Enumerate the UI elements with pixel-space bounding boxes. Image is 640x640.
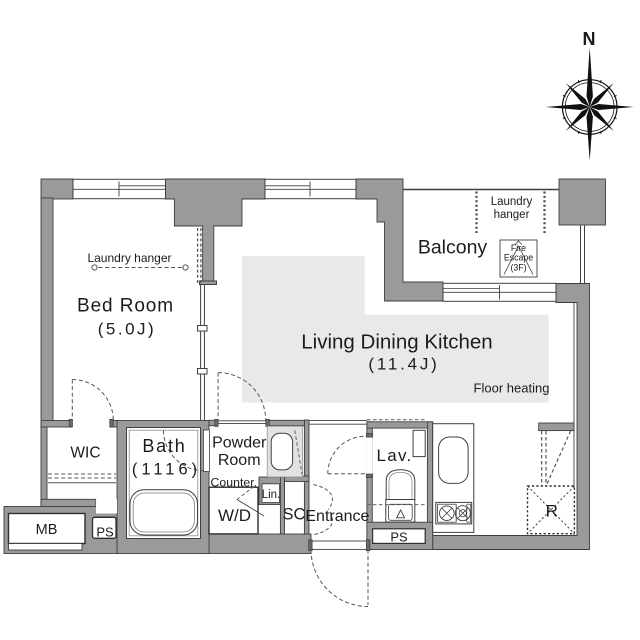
svg-text:Fire: Fire xyxy=(511,243,526,253)
svg-text:Laundry hanger: Laundry hanger xyxy=(87,251,171,265)
svg-text:Balcony: Balcony xyxy=(418,237,488,259)
svg-text:W/D: W/D xyxy=(218,506,251,525)
svg-text:SC: SC xyxy=(283,506,306,524)
svg-text:(3F): (3F) xyxy=(510,263,526,273)
svg-text:Floor heating: Floor heating xyxy=(474,381,550,396)
svg-text:MB: MB xyxy=(36,522,58,538)
svg-text:PS: PS xyxy=(96,525,114,540)
svg-text:PS: PS xyxy=(390,530,408,545)
svg-text:WIC: WIC xyxy=(70,445,100,462)
svg-text:Living Dining Kitchen: Living Dining Kitchen xyxy=(301,331,492,354)
svg-text:Bed Room: Bed Room xyxy=(77,296,174,317)
svg-text:Bath: Bath xyxy=(142,436,186,456)
svg-text:(1116): (1116) xyxy=(132,461,201,479)
svg-text:(5.0J): (5.0J) xyxy=(98,320,156,339)
svg-text:N: N xyxy=(583,29,596,49)
svg-text:hanger: hanger xyxy=(494,209,530,221)
svg-text:Powder: Powder xyxy=(212,435,267,452)
svg-text:R: R xyxy=(546,502,558,521)
svg-text:Lav.: Lav. xyxy=(376,446,412,465)
svg-text:(11.4J): (11.4J) xyxy=(368,355,439,374)
svg-text:Escape: Escape xyxy=(504,253,533,263)
svg-text:Entrance: Entrance xyxy=(305,508,369,525)
svg-text:Laundry: Laundry xyxy=(491,196,533,208)
svg-text:Room: Room xyxy=(218,452,261,469)
svg-text:Lin.: Lin. xyxy=(262,489,281,501)
